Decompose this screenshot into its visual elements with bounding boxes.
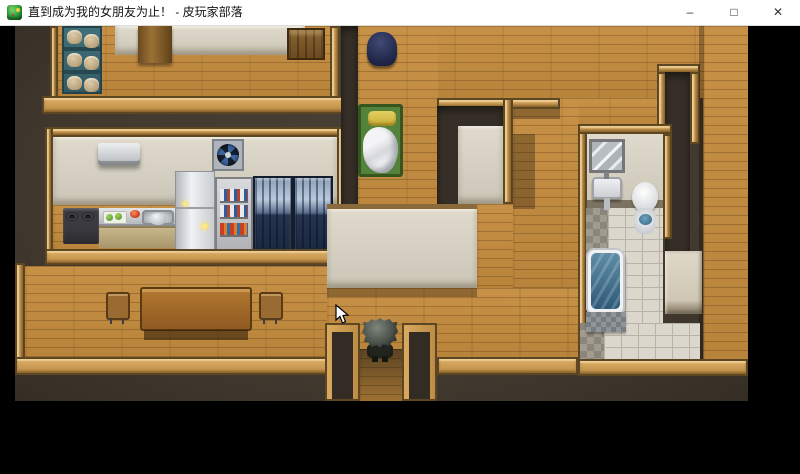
toilet: [631, 182, 659, 240]
storage-room: [42, 26, 345, 116]
title-bar[interactable]: 直到成为我的女朋友为止！ - 皮玩家部落 – □ ✕: [0, 0, 800, 26]
bathroom-sink: [592, 177, 622, 199]
character-head: [362, 318, 398, 348]
close-button[interactable]: ✕: [756, 0, 800, 25]
minimize-icon: –: [687, 5, 694, 19]
bath-mat: [586, 312, 626, 332]
kitchen-room: ✦ ✦: [45, 127, 345, 265]
doorway-left-post-recess: [332, 332, 353, 399]
center-vertical-trim: [503, 98, 513, 204]
chair-right: [259, 292, 283, 320]
stove-burner: [82, 212, 94, 221]
mouse-cursor-icon: [335, 304, 350, 325]
dining-south-trim: [15, 357, 345, 375]
bread-sack: [84, 34, 99, 48]
mirror: [589, 139, 625, 173]
wall-face-center: [458, 126, 503, 204]
dining-table: [140, 287, 252, 331]
bread-sack: [67, 30, 82, 44]
minimize-button[interactable]: –: [668, 0, 712, 25]
dish-shelf: [215, 177, 253, 251]
floor-gap: [477, 204, 513, 288]
stove-burner: [66, 212, 78, 221]
refrigerator: ✦ ✦: [175, 171, 215, 251]
hallway-wall-shadow: [327, 288, 477, 297]
window-title: 直到成为我的女朋友为止！ - 皮玩家部落: [28, 0, 243, 25]
player-character: [362, 318, 398, 362]
bread-sack: [67, 53, 82, 67]
bed-pillow: [368, 111, 396, 126]
sparkle-icon: ✦: [180, 198, 190, 210]
bed-blanket: [363, 127, 398, 173]
maximize-icon: □: [730, 5, 737, 19]
bathtub: [586, 248, 625, 316]
character-feet: [372, 356, 388, 362]
maximize-button[interactable]: □: [712, 0, 756, 25]
bathroom-right-trim: [663, 134, 672, 239]
wooden-pillar: [138, 26, 172, 63]
toilet-water: [639, 214, 652, 225]
doorway-right-post-recess: [409, 332, 430, 399]
game-viewport: ✦ ✦: [0, 26, 800, 474]
red-dish: [130, 210, 140, 218]
kitchen-left-trim: [45, 127, 53, 265]
dish-row: [220, 205, 248, 217]
dining-room: [15, 263, 345, 375]
kitchen-counter-base: [99, 226, 175, 248]
armor-stand: [367, 32, 397, 66]
sink-pedestal: [604, 198, 610, 210]
game-icon: [7, 5, 22, 20]
storage-south-wall-trim: [42, 96, 345, 114]
close-icon: ✕: [773, 5, 783, 19]
bed: [358, 104, 403, 177]
doorway-left-post: [325, 323, 360, 401]
vegetable: [106, 214, 113, 221]
cutting-board: [103, 211, 127, 224]
kitchen-sink: [142, 210, 174, 225]
vegetable: [115, 213, 122, 220]
bread-sack: [84, 78, 99, 92]
game-window: 直到成为我的女朋友为止！ - 皮玩家部落 – □ ✕: [0, 0, 800, 474]
bread-sack: [67, 76, 82, 90]
table-shadow: [144, 330, 248, 340]
kitchen-north-trim: [45, 127, 345, 137]
bread-shelf: [62, 26, 102, 94]
air-conditioner: [98, 143, 140, 165]
hallway-north-wall: [327, 204, 477, 288]
ventilation-fan: [212, 139, 244, 171]
stove: [63, 208, 99, 244]
fan-hub: [225, 152, 231, 158]
bathroom-south-trim: [578, 359, 748, 376]
hallway-south-trim: [437, 357, 578, 375]
changing-mat: [665, 251, 702, 314]
wooden-cabinet: [287, 28, 325, 60]
display-cabinet-left: [253, 176, 293, 252]
game-map-canvas[interactable]: ✦ ✦: [15, 26, 748, 401]
sparkle-icon: ✦: [198, 220, 211, 236]
cooking-pot: [149, 213, 167, 225]
doorway-right-post: [402, 323, 437, 401]
bread-sack: [84, 56, 99, 70]
bathtub-water: [591, 253, 620, 309]
bottle-row: [220, 223, 248, 235]
bathroom-north-trim: [578, 124, 672, 134]
right-corridor-floor: [703, 26, 748, 359]
chair-left: [106, 292, 130, 320]
dish-row: [220, 189, 248, 201]
wall-shadow: [513, 134, 535, 209]
